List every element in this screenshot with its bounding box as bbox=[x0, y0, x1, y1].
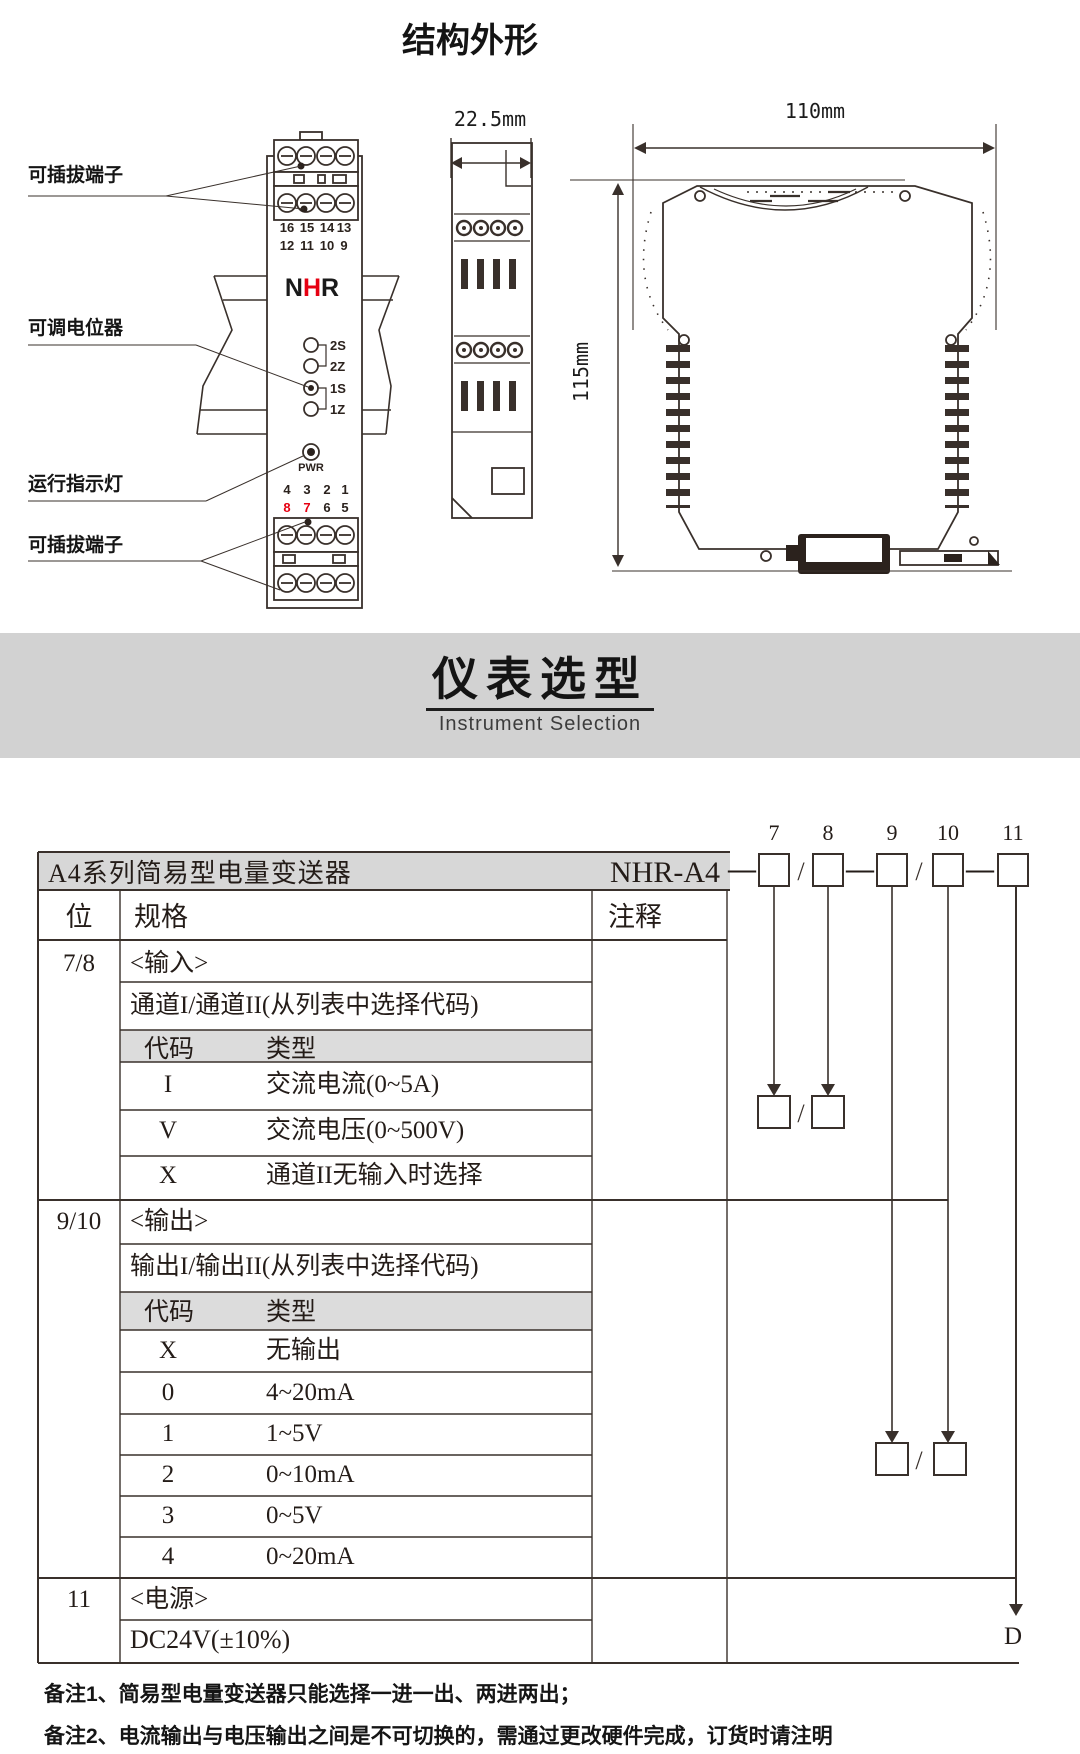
callout-run-indicator: 运行指示灯 bbox=[28, 472, 123, 495]
page-title: 结构外形 bbox=[402, 22, 538, 60]
code-pos-7: 7 bbox=[759, 820, 789, 846]
code-separator-slash: / bbox=[789, 856, 813, 888]
row-type: 1~5V bbox=[266, 1419, 323, 1449]
svg-text:12: 12 bbox=[280, 238, 294, 253]
row-code: 3 bbox=[140, 1501, 196, 1531]
section-banner: 仪表选型 Instrument Selection bbox=[0, 633, 1080, 758]
header-pos: 位 bbox=[38, 901, 120, 933]
svg-text:9: 9 bbox=[340, 238, 347, 253]
note-1: 备注1、简易型电量变送器只能选择一进一出、两进两出； bbox=[44, 1678, 581, 1708]
svg-text:6: 6 bbox=[323, 500, 330, 515]
svg-text:5: 5 bbox=[341, 500, 348, 515]
row-type: 0~10mA bbox=[266, 1460, 355, 1490]
module-front-view: 16 15 14 13 12 11 10 9 NHR 2S 2Z 1S 1Z bbox=[267, 132, 362, 608]
code-arrows bbox=[774, 886, 948, 1431]
bottom-terminal-block bbox=[274, 518, 358, 600]
order-code-boxes bbox=[758, 854, 1028, 1475]
dimension-depth-label: 22.5mm bbox=[454, 107, 526, 131]
section-pos: 9/10 bbox=[38, 1207, 120, 1237]
row-code: 1 bbox=[140, 1419, 196, 1449]
svg-text:8: 8 bbox=[283, 500, 290, 515]
section-group: <输出> bbox=[130, 1207, 208, 1237]
svg-text:4: 4 bbox=[283, 482, 291, 497]
svg-text:15: 15 bbox=[300, 220, 314, 235]
structure-drawing: 结构外形 16 15 14 13 12 11 10 bbox=[0, 0, 1080, 633]
svg-text:1Z: 1Z bbox=[330, 402, 345, 417]
section-desc: 通道I/通道II(从列表中选择代码) bbox=[130, 991, 479, 1021]
svg-text:14: 14 bbox=[320, 220, 335, 235]
top-terminal-block bbox=[274, 140, 358, 220]
callout-leader-lines bbox=[28, 166, 308, 590]
svg-text:10: 10 bbox=[320, 238, 334, 253]
code-separator-slash: / bbox=[790, 1098, 812, 1130]
module-rear-view bbox=[644, 186, 1000, 574]
code-pos-8: 8 bbox=[813, 820, 843, 846]
code-pos-11: 11 bbox=[998, 820, 1028, 846]
section-group: <输入> bbox=[130, 949, 208, 979]
row-type: 0~20mA bbox=[266, 1542, 355, 1572]
code-separator-slash: / bbox=[907, 856, 931, 888]
nhr-logo: NHR bbox=[285, 274, 339, 302]
row-code: X bbox=[140, 1336, 196, 1366]
row-type: 无输出 bbox=[266, 1336, 341, 1366]
power-code-letter: D bbox=[1000, 1622, 1026, 1652]
svg-text:2Z: 2Z bbox=[330, 359, 345, 374]
row-code: V bbox=[140, 1116, 196, 1146]
svg-text:16: 16 bbox=[280, 220, 294, 235]
section-group: <电源> bbox=[130, 1585, 208, 1615]
row-type: 交流电流(0~5A) bbox=[266, 1070, 439, 1100]
section-pos: 7/8 bbox=[38, 949, 120, 979]
banner-subtitle: Instrument Selection bbox=[0, 713, 1080, 736]
code-separator-dash: — bbox=[726, 854, 758, 886]
header-note: 注释 bbox=[608, 901, 662, 933]
svg-text:3: 3 bbox=[303, 482, 310, 497]
section-desc: 输出I/输出II(从列表中选择代码) bbox=[130, 1252, 479, 1282]
callout-pluggable-terminal-top: 可插拔端子 bbox=[28, 163, 123, 186]
code-separator-slash: / bbox=[908, 1445, 930, 1477]
dimension-height-label: 115mm bbox=[569, 342, 593, 402]
callout-adjustable-potentiometer: 可调电位器 bbox=[28, 316, 124, 339]
subheader-code: 代码 bbox=[144, 1298, 194, 1328]
selection-table: 7 8 9 10 11 A4系列简易型电量变送器 NHR-A4 — / — / … bbox=[0, 758, 1080, 1754]
svg-text:11: 11 bbox=[300, 238, 314, 253]
code-pos-9: 9 bbox=[877, 820, 907, 846]
svg-text:1S: 1S bbox=[330, 381, 346, 396]
section-desc: DC24V(±10%) bbox=[130, 1624, 290, 1655]
svg-text:7: 7 bbox=[303, 500, 310, 515]
row-type: 通道II无输入时选择 bbox=[266, 1161, 483, 1191]
svg-text:13: 13 bbox=[337, 220, 351, 235]
model-code: NHR-A4 bbox=[520, 855, 720, 891]
row-code: 2 bbox=[140, 1460, 196, 1490]
banner-title: 仪表选型 bbox=[426, 655, 654, 711]
header-spec: 规格 bbox=[134, 901, 188, 933]
svg-text:2: 2 bbox=[323, 482, 330, 497]
section-pos: 11 bbox=[38, 1585, 120, 1615]
row-type: 0~5V bbox=[266, 1501, 323, 1531]
note-2: 备注2、电流输出与电压输出之间是不可切换的，需通过更改硬件完成，订货时请注明 bbox=[44, 1720, 833, 1750]
dimension-width-label: 110mm bbox=[785, 99, 845, 123]
module-side-view bbox=[452, 143, 532, 518]
code-separator-dash: — bbox=[845, 854, 875, 886]
subheader-code: 代码 bbox=[144, 1035, 194, 1065]
row-code: I bbox=[140, 1070, 196, 1100]
row-type: 交流电压(0~500V) bbox=[266, 1116, 464, 1146]
code-separator-dash: — bbox=[963, 854, 997, 886]
svg-text:PWR: PWR bbox=[298, 462, 324, 474]
svg-text:2S: 2S bbox=[330, 338, 346, 353]
row-code: 4 bbox=[140, 1542, 196, 1572]
code-pos-10: 10 bbox=[933, 820, 963, 846]
row-code: X bbox=[140, 1161, 196, 1191]
callout-pluggable-terminal-bottom: 可插拔端子 bbox=[28, 533, 123, 556]
product-name: A4系列简易型电量变送器 bbox=[48, 858, 352, 889]
svg-text:1: 1 bbox=[341, 482, 348, 497]
subheader-type: 类型 bbox=[266, 1035, 316, 1065]
row-code: 0 bbox=[140, 1378, 196, 1408]
row-type: 4~20mA bbox=[266, 1378, 355, 1408]
subheader-type: 类型 bbox=[266, 1298, 316, 1328]
